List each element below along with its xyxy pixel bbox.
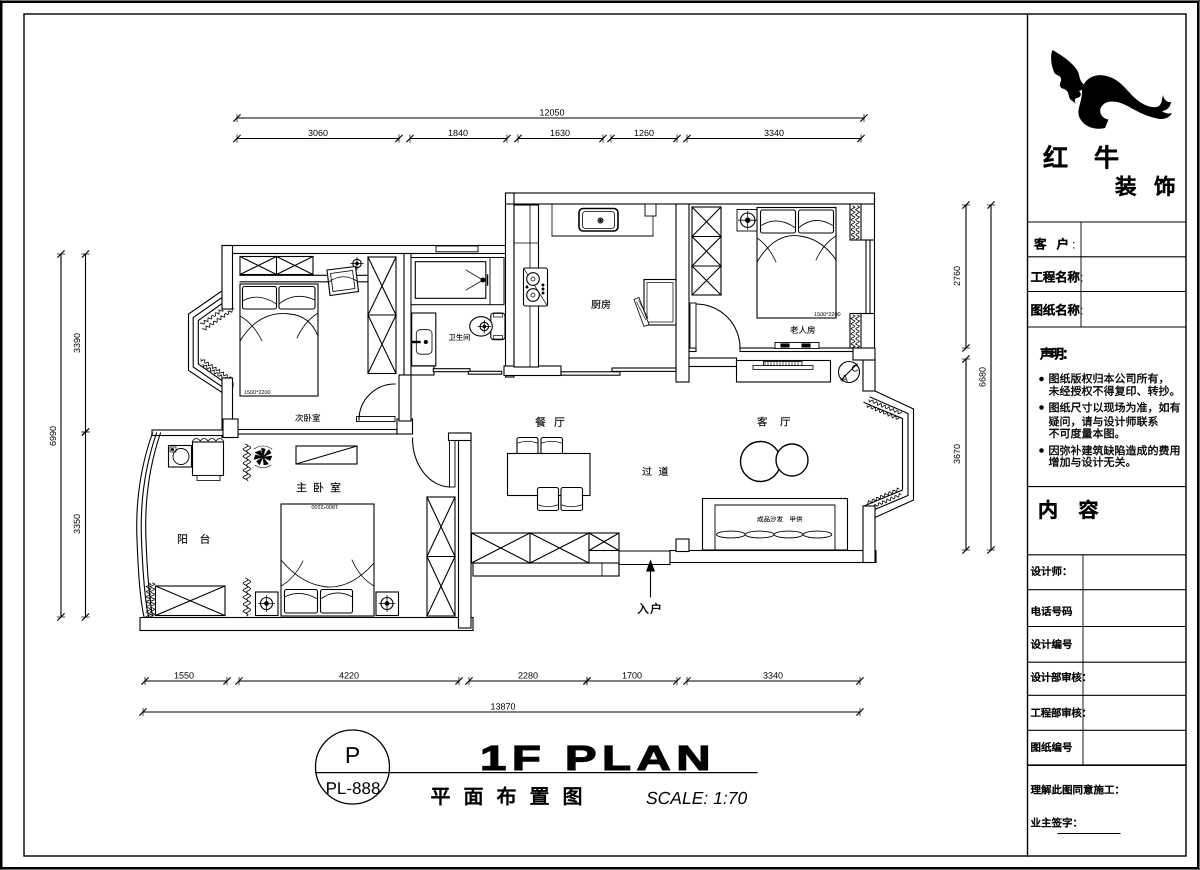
svg-text:1700: 1700 (622, 671, 642, 681)
svg-text:3060: 3060 (308, 128, 328, 138)
svg-text:6680: 6680 (978, 367, 988, 387)
svg-text:P: P (345, 742, 360, 768)
svg-text::: : (1090, 499, 1096, 521)
svg-text:PL-888: PL-888 (326, 779, 381, 798)
svg-text:6990: 6990 (48, 426, 58, 446)
svg-text::: : (1080, 271, 1083, 285)
svg-text::: : (1080, 304, 1083, 318)
svg-text:3340: 3340 (763, 671, 783, 681)
svg-text:3340: 3340 (764, 128, 784, 138)
svg-text:1260: 1260 (634, 128, 654, 138)
svg-text:13870: 13870 (490, 702, 515, 712)
svg-text:2760: 2760 (952, 266, 962, 286)
svg-text:12050: 12050 (539, 108, 564, 118)
svg-text:4220: 4220 (339, 671, 359, 681)
svg-text:C: C (852, 364, 859, 375)
svg-text:A: A (842, 374, 849, 385)
svg-text:1550: 1550 (174, 671, 194, 681)
svg-text:1500*2200: 1500*2200 (814, 312, 841, 318)
svg-text:1F PLAN: 1F PLAN (480, 739, 716, 778)
svg-text:2280: 2280 (518, 671, 538, 681)
svg-text:1630: 1630 (550, 128, 570, 138)
svg-text:SCALE: 1:70: SCALE: 1:70 (646, 788, 747, 808)
svg-text:1500*2200: 1500*2200 (244, 390, 271, 396)
svg-text:1800*2200: 1800*2200 (311, 503, 338, 509)
svg-text:3390: 3390 (72, 333, 82, 353)
svg-text:3670: 3670 (952, 444, 962, 464)
svg-text::: : (1072, 238, 1075, 252)
svg-text:1840: 1840 (448, 128, 468, 138)
svg-text:3350: 3350 (72, 514, 82, 534)
